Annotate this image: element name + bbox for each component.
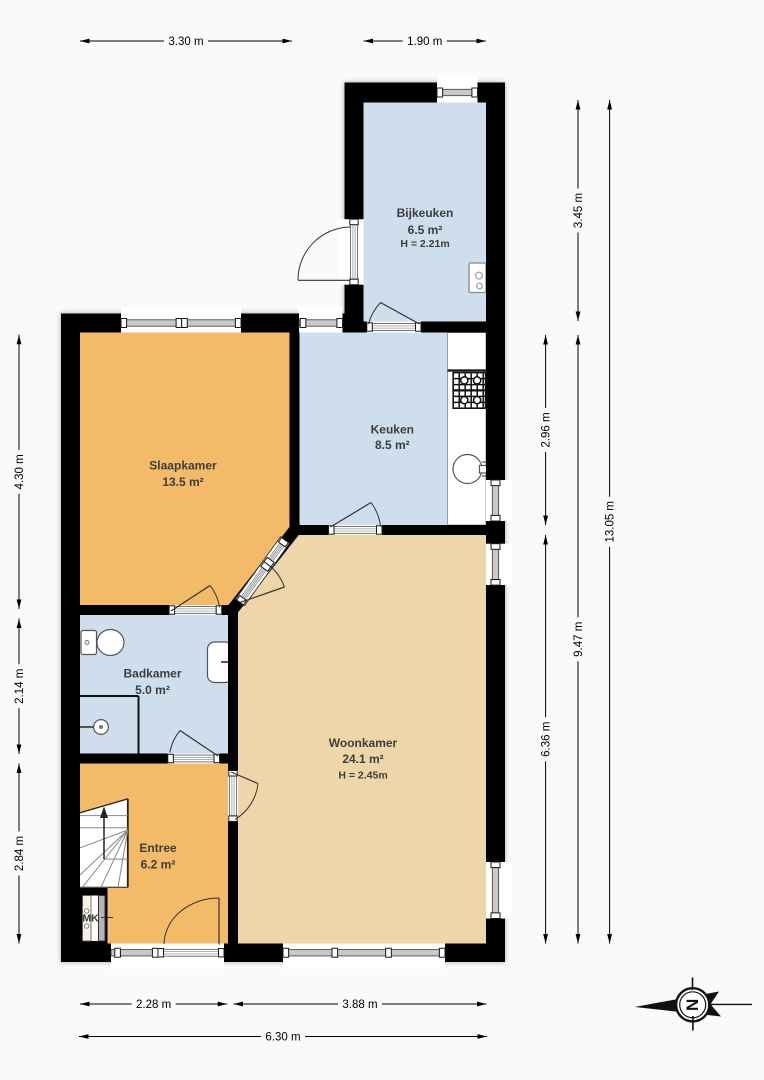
svg-text:MK: MK	[82, 913, 99, 925]
svg-text:N: N	[683, 999, 702, 1011]
svg-text:2.28 m: 2.28 m	[136, 999, 171, 1011]
svg-text:3.30 m: 3.30 m	[168, 36, 203, 48]
svg-text:6.2 m²: 6.2 m²	[141, 858, 176, 872]
svg-text:Entree: Entree	[139, 841, 177, 855]
svg-text:9.47 m: 9.47 m	[573, 622, 585, 657]
svg-text:8.5 m²: 8.5 m²	[375, 438, 410, 452]
svg-text:3.88 m: 3.88 m	[342, 999, 377, 1011]
svg-text:2.96 m: 2.96 m	[541, 412, 553, 447]
svg-text:6.30 m: 6.30 m	[265, 1032, 300, 1044]
svg-text:H = 2.45m: H = 2.45m	[338, 769, 387, 781]
svg-text:3.45 m: 3.45 m	[573, 193, 585, 228]
svg-text:Badkamer: Badkamer	[123, 667, 181, 681]
svg-text:2.14 m: 2.14 m	[14, 669, 26, 704]
svg-text:5.0 m²: 5.0 m²	[135, 683, 170, 697]
svg-text:H = 2.21m: H = 2.21m	[400, 238, 449, 250]
svg-text:2.84 m: 2.84 m	[14, 836, 26, 871]
svg-text:Keuken: Keuken	[371, 423, 414, 437]
svg-text:13.05 m: 13.05 m	[605, 501, 617, 543]
svg-text:Woonkamer: Woonkamer	[329, 736, 398, 750]
svg-text:Bijkeuken: Bijkeuken	[397, 206, 454, 220]
svg-text:1.90 m: 1.90 m	[407, 36, 442, 48]
svg-text:Slaapkamer: Slaapkamer	[149, 459, 217, 473]
svg-text:13.5 m²: 13.5 m²	[162, 475, 203, 489]
svg-text:24.1 m²: 24.1 m²	[342, 752, 383, 766]
svg-text:4.30 m: 4.30 m	[14, 454, 26, 489]
svg-text:6.36 m: 6.36 m	[541, 722, 553, 757]
svg-text:6.5 m²: 6.5 m²	[408, 223, 443, 237]
